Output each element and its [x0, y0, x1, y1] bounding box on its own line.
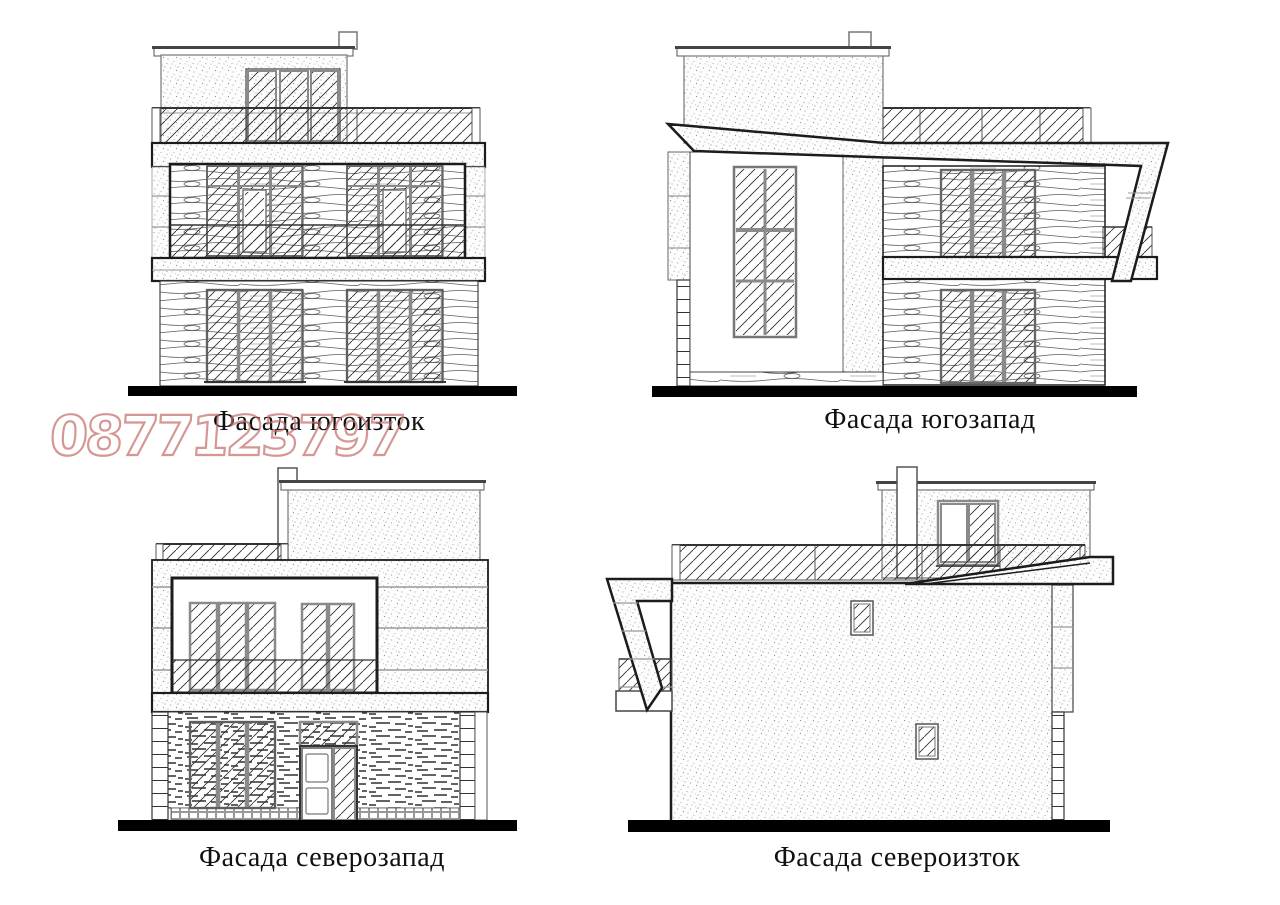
ground-window — [190, 722, 275, 808]
chimney — [849, 32, 871, 48]
ground-floor — [152, 712, 487, 822]
pillar-ladder-right — [460, 712, 475, 820]
facade-northwest-drawing — [118, 468, 517, 831]
side-pillar-left — [668, 152, 690, 386]
ground-window-right — [344, 290, 446, 382]
terrace-glass-railing — [152, 108, 480, 143]
side-pillar-right — [1052, 585, 1073, 822]
small-window-lower — [916, 724, 938, 759]
ground-line — [652, 386, 1137, 397]
terrace-glass-railing — [156, 544, 288, 560]
entrance-door — [300, 722, 357, 822]
facade-southwest-drawing — [652, 32, 1168, 397]
facade-caption-northeast: Фасада североизток — [774, 842, 1021, 874]
facade-caption-southwest: Фасада югозапад — [824, 404, 1035, 436]
door-side-panel — [334, 748, 355, 820]
balcony-glass-railing — [172, 660, 377, 693]
small-window-upper — [851, 601, 873, 635]
ground-line — [628, 820, 1110, 832]
elevation-sheet: Фасада югоизток Фасада югозапад Фасада с… — [0, 0, 1280, 905]
middle-floor — [152, 164, 485, 258]
floor-slab-lower — [152, 258, 485, 281]
floor-slab — [152, 693, 488, 712]
pillar-ladder-blocks — [1052, 712, 1064, 822]
pillar-ladder-left — [152, 712, 168, 820]
terrace-glass-railing — [883, 108, 1091, 143]
pillar-ladder-blocks — [677, 280, 690, 386]
penthouse-wall — [288, 490, 480, 560]
projecting-balcony-box — [172, 578, 377, 693]
door-transom — [300, 722, 357, 746]
low-parapet-strip — [690, 372, 883, 386]
ground-line — [128, 386, 517, 396]
balcony-glass-railing — [170, 225, 465, 258]
left-balcony — [607, 579, 672, 711]
corner-strip — [475, 712, 487, 820]
tall-stair-window — [734, 167, 796, 337]
facade-caption-northwest: Фасада северозапад — [199, 842, 445, 874]
upper-window-group — [941, 170, 1035, 257]
corner-column — [843, 152, 883, 385]
ground-line — [118, 820, 517, 831]
lower-window-group — [941, 290, 1035, 383]
facade-northeast-drawing — [607, 467, 1113, 832]
penthouse-roof-slab — [279, 481, 486, 490]
watermark-phone-number: 0877123797 — [48, 404, 405, 468]
ground-window-left — [204, 290, 306, 382]
facade-southeast-drawing — [128, 32, 517, 396]
penthouse-roof-slab — [675, 47, 891, 56]
